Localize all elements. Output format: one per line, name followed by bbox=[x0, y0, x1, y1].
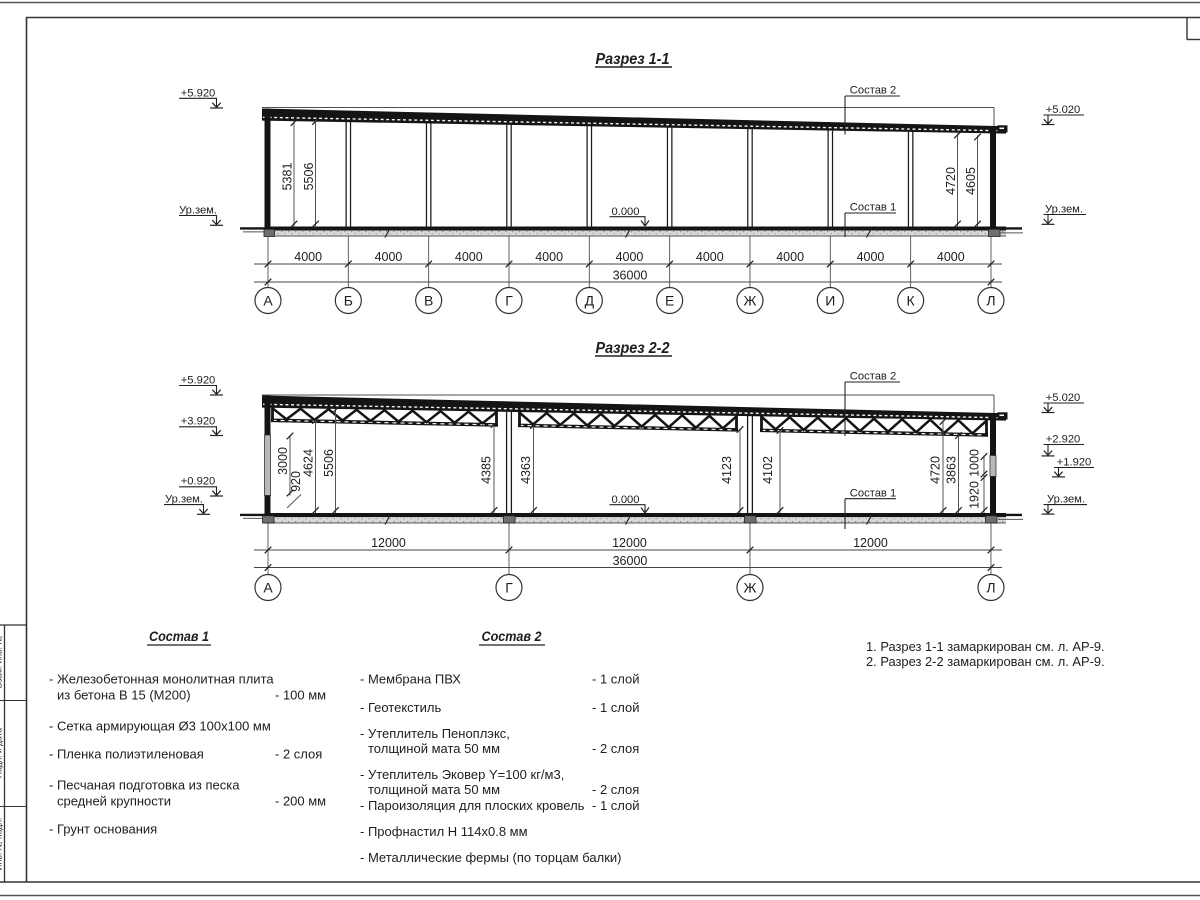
svg-text:из бетона В 15 (М200): из бетона В 15 (М200) bbox=[57, 688, 191, 703]
svg-text:+0.920: +0.920 bbox=[181, 476, 216, 488]
svg-text:4000: 4000 bbox=[776, 250, 804, 264]
svg-text:+5.020: +5.020 bbox=[1046, 104, 1081, 116]
svg-text:4000: 4000 bbox=[455, 250, 483, 264]
svg-text:Б: Б bbox=[344, 293, 353, 309]
svg-text:Ж: Ж bbox=[744, 580, 757, 596]
svg-text:К: К bbox=[907, 293, 916, 309]
svg-text:Состав 1: Состав 1 bbox=[850, 488, 896, 500]
svg-text:2. Разрез 2-2 замаркирован см.: 2. Разрез 2-2 замаркирован см. л. АР-9. bbox=[866, 654, 1105, 669]
svg-text:Разрез 2-2: Разрез 2-2 bbox=[596, 340, 670, 357]
svg-text:А: А bbox=[263, 293, 273, 309]
svg-text:36000: 36000 bbox=[613, 554, 648, 568]
svg-text:4720: 4720 bbox=[929, 456, 943, 484]
svg-text:Е: Е bbox=[665, 293, 674, 309]
svg-text:- 2 слоя: - 2 слоя bbox=[275, 747, 322, 762]
svg-text:12000: 12000 bbox=[853, 536, 888, 550]
svg-text:5506: 5506 bbox=[302, 163, 316, 191]
svg-text:- 1 слой: - 1 слой bbox=[592, 700, 640, 715]
svg-text:4720: 4720 bbox=[944, 167, 958, 195]
svg-text:Взам. инв. №: Взам. инв. № bbox=[0, 636, 4, 689]
svg-text:- Грунт основания: - Грунт основания bbox=[49, 822, 157, 837]
svg-text:+1.920: +1.920 bbox=[1057, 457, 1092, 469]
svg-text:- Пароизоляция для плоских кро: - Пароизоляция для плоских кровель bbox=[360, 798, 585, 813]
svg-text:+3.920: +3.920 bbox=[181, 416, 216, 428]
svg-text:Ур.зем.: Ур.зем. bbox=[1047, 494, 1085, 506]
svg-text:- Утеплитель Эковер Y=100 кг/м: - Утеплитель Эковер Y=100 кг/м3, bbox=[360, 767, 564, 782]
svg-text:Разрез 1-1: Разрез 1-1 bbox=[596, 51, 670, 68]
svg-text:толщиной мата 50 мм: толщиной мата 50 мм bbox=[368, 782, 500, 797]
svg-text:- Утеплитель Пеноплэкс,: - Утеплитель Пеноплэкс, bbox=[360, 726, 510, 741]
svg-text:+5.920: +5.920 bbox=[181, 88, 216, 100]
svg-text:Д: Д bbox=[585, 293, 595, 309]
svg-text:Состав 2: Состав 2 bbox=[482, 629, 542, 644]
svg-text:4000: 4000 bbox=[937, 250, 965, 264]
svg-text:5506: 5506 bbox=[322, 449, 336, 477]
svg-text:4000: 4000 bbox=[535, 250, 563, 264]
svg-text:4000: 4000 bbox=[616, 250, 644, 264]
svg-text:4102: 4102 bbox=[761, 456, 775, 484]
svg-text:4000: 4000 bbox=[857, 250, 885, 264]
svg-text:Л: Л bbox=[986, 580, 995, 596]
svg-text:- Геотекстиль: - Геотекстиль bbox=[360, 700, 441, 715]
svg-text:- Песчаная подготовка из песка: - Песчаная подготовка из песка bbox=[49, 778, 240, 793]
svg-text:- Металлические фермы (по торц: - Металлические фермы (по торцам балки) bbox=[360, 850, 621, 865]
svg-text:12000: 12000 bbox=[612, 536, 647, 550]
svg-text:А: А bbox=[263, 580, 273, 596]
svg-text:- Профнастил Н 114х0.8 мм: - Профнастил Н 114х0.8 мм bbox=[360, 824, 528, 839]
svg-text:4123: 4123 bbox=[720, 456, 734, 484]
svg-text:3000: 3000 bbox=[276, 447, 290, 475]
svg-text:Состав 2: Состав 2 bbox=[850, 371, 896, 383]
svg-text:- Сетка армирующая Ø3 100х100: - Сетка армирующая Ø3 100х100 мм bbox=[49, 719, 271, 734]
svg-text:4000: 4000 bbox=[375, 250, 403, 264]
svg-text:- Мембрана ПВХ: - Мембрана ПВХ bbox=[360, 672, 461, 687]
svg-text:4385: 4385 bbox=[480, 456, 494, 484]
svg-text:- 200 мм: - 200 мм bbox=[275, 794, 326, 809]
svg-text:Г: Г bbox=[505, 580, 513, 596]
svg-text:Подп. и дата: Подп. и дата bbox=[0, 728, 4, 778]
svg-text:Ур.зем.: Ур.зем. bbox=[179, 205, 217, 217]
svg-text:Состав 1: Состав 1 bbox=[149, 629, 209, 644]
svg-text:Ур.зем.: Ур.зем. bbox=[165, 494, 203, 506]
svg-text:1920: 1920 bbox=[968, 481, 982, 509]
svg-text:- 2 слоя: - 2 слоя bbox=[592, 782, 639, 797]
svg-text:Состав 2: Состав 2 bbox=[850, 85, 896, 97]
svg-text:- 2 слоя: - 2 слоя bbox=[592, 741, 639, 756]
svg-text:толщиной мата 50 мм: толщиной мата 50 мм bbox=[368, 741, 500, 756]
svg-text:Ж: Ж bbox=[744, 293, 757, 309]
svg-text:36000: 36000 bbox=[613, 269, 648, 283]
svg-text:Г: Г bbox=[505, 293, 513, 309]
svg-text:12000: 12000 bbox=[371, 536, 406, 550]
svg-text:Л: Л bbox=[986, 293, 995, 309]
svg-text:1. Разрез 1-1 замаркирован см.: 1. Разрез 1-1 замаркирован см. л. АР-9. bbox=[866, 639, 1105, 654]
svg-text:- Железобетонная монолитная п: - Железобетонная монолитная плита bbox=[49, 672, 274, 687]
svg-text:- 1 слой: - 1 слой bbox=[592, 798, 640, 813]
svg-text:4605: 4605 bbox=[964, 167, 978, 195]
svg-text:4363: 4363 bbox=[519, 456, 533, 484]
svg-text:средней крупности: средней крупности bbox=[57, 794, 171, 809]
svg-text:5381: 5381 bbox=[281, 163, 295, 191]
svg-text:4000: 4000 bbox=[294, 250, 322, 264]
svg-text:4624: 4624 bbox=[302, 449, 316, 477]
svg-text:Состав 1: Состав 1 bbox=[850, 202, 896, 214]
svg-text:Ур.зем.: Ур.зем. bbox=[1045, 204, 1083, 216]
svg-text:3863: 3863 bbox=[945, 456, 959, 484]
svg-text:Инв. № подл.: Инв. № подл. bbox=[0, 818, 4, 871]
svg-text:+2.920: +2.920 bbox=[1046, 434, 1081, 446]
svg-text:И: И bbox=[825, 293, 835, 309]
svg-text:- 100 мм: - 100 мм bbox=[275, 688, 326, 703]
svg-text:- Пленка полиэтиленовая: - Пленка полиэтиленовая bbox=[49, 747, 204, 762]
svg-text:В: В bbox=[424, 293, 433, 309]
svg-text:- 1 слой: - 1 слой bbox=[592, 672, 640, 687]
svg-text:1000: 1000 bbox=[968, 449, 982, 477]
svg-text:+5.920: +5.920 bbox=[181, 375, 216, 387]
svg-text:4000: 4000 bbox=[696, 250, 724, 264]
svg-text:+5.020: +5.020 bbox=[1046, 392, 1081, 404]
